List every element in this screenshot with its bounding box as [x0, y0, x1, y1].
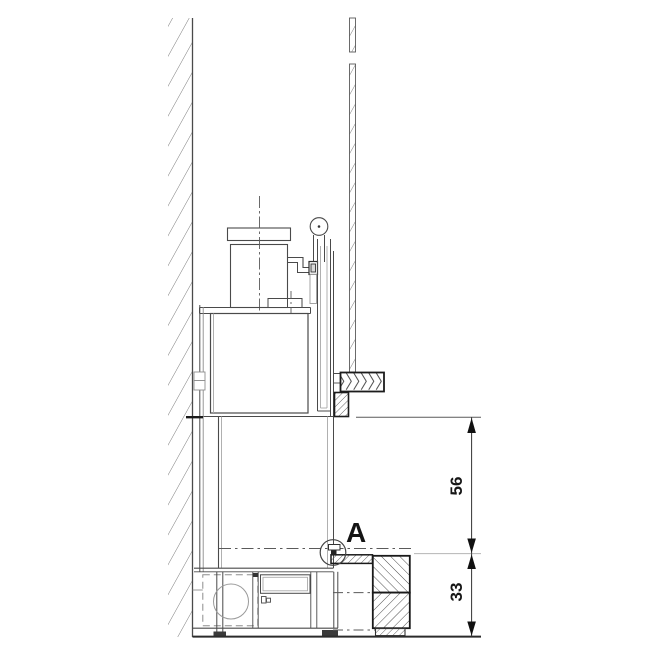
arrow-up-icon: [467, 554, 476, 569]
shield-bracket: [335, 373, 385, 417]
ash-drawer-knob: [214, 584, 249, 619]
left-foot: [214, 632, 227, 637]
left-wall-hatching: [168, 18, 192, 637]
masonry-foot-pad: [376, 628, 406, 635]
dimension-upper-clearance: 56: [356, 417, 481, 553]
wall-bracket-upper: [194, 372, 205, 381]
wall-bracket-lower: [194, 381, 205, 391]
masonry-block-lower: [373, 593, 410, 629]
dimension-56-value: 56: [447, 477, 466, 496]
detail-label: A: [346, 517, 366, 548]
left-wall: [168, 18, 193, 637]
right-foot: [322, 630, 338, 637]
connection-pipe: [288, 258, 318, 304]
masonry-block-upper: [373, 556, 410, 593]
damper-rod: [310, 275, 317, 304]
arrow-up-icon: [467, 418, 476, 433]
stove-installation-section-drawing: A 56 33: [0, 0, 650, 650]
convection-duct: [318, 239, 334, 568]
upper-firebox: [211, 314, 309, 414]
bracket-vertical-piece: [335, 393, 349, 417]
top-access-plate: [268, 299, 302, 308]
shield-panel-lower-segment: [350, 64, 356, 372]
drawing-svg: A 56 33: [0, 0, 650, 650]
arrow-down-icon: [467, 622, 476, 636]
hearth-plate: [331, 555, 373, 564]
latch-detail: [262, 597, 267, 604]
flue-collar: [228, 228, 291, 241]
stove-body: [186, 291, 414, 590]
right-shield-panel: [350, 18, 356, 372]
pulley-axle: [318, 225, 321, 228]
damper-pulley: [310, 218, 328, 263]
dimension-lower-clearance: 33: [447, 554, 476, 637]
shield-panel-upper-segment: [350, 18, 356, 52]
stove-base: [193, 568, 339, 636]
detail-flange: [329, 545, 341, 551]
arrow-down-icon: [467, 539, 476, 554]
hearth-blocks: [331, 555, 410, 636]
dimension-33-value: 33: [447, 583, 466, 602]
bracket-horizontal-piece: [341, 373, 385, 392]
base-hidden-outline: [203, 575, 258, 626]
